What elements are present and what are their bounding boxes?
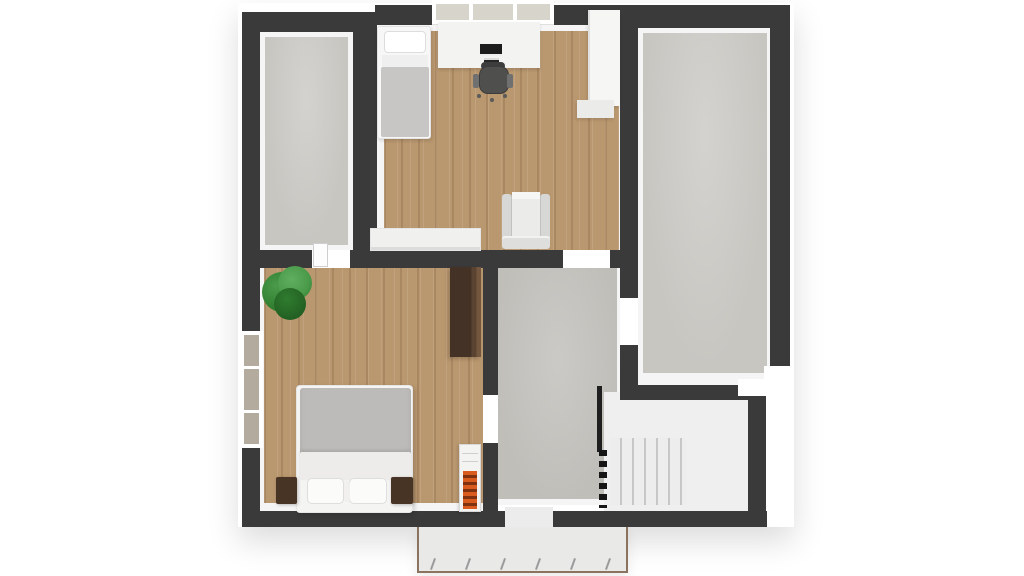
armchair-back [502, 236, 550, 249]
wall-left-lower [242, 446, 260, 519]
baluster-tick [500, 558, 506, 570]
window-corner-right-sill [738, 379, 768, 396]
window-pane [517, 4, 550, 20]
wall-right-upper [770, 5, 790, 368]
floor-plan-canvas [0, 0, 1024, 576]
wall-stairwell-stub [597, 386, 602, 452]
wall-mid-horizontal-b [350, 250, 563, 268]
baluster-tick [570, 558, 576, 570]
door-leaf [313, 243, 328, 267]
baluster-tick [465, 558, 471, 570]
radiator-cap-line [462, 453, 478, 454]
armchair-seat [512, 198, 540, 236]
office-chair [473, 62, 513, 102]
chair-caster [490, 98, 494, 102]
room-attic-storage-right [638, 28, 772, 385]
wall-storage-right-bottom [620, 385, 750, 400]
window-pane [244, 413, 259, 444]
radiator-slats [463, 471, 477, 509]
chair-armrest-right [507, 74, 513, 88]
room-attic-storage-left [260, 32, 353, 250]
wall-bedroom-hall-upper [483, 250, 498, 395]
stair-railing [599, 450, 607, 508]
stair-treads [610, 438, 686, 505]
chair-seat [479, 66, 509, 94]
armchair-arm-right [540, 194, 550, 240]
baluster-tick [430, 558, 436, 570]
wall-hall-storage-upper [620, 5, 638, 298]
dark-wardrobe [450, 267, 481, 357]
wall-bottom-right [553, 511, 767, 527]
radiator-cap-line [462, 461, 478, 462]
bed-pillow [384, 31, 426, 53]
window-bedroom-left [240, 331, 263, 448]
baluster-tick [605, 558, 611, 570]
nightstand-left [276, 477, 297, 504]
plant-foliage [274, 288, 306, 320]
window-pane [244, 335, 259, 366]
armchair [502, 192, 550, 249]
white-wardrobe [588, 10, 620, 106]
wall-top-right [620, 5, 790, 28]
wall-bottom-left [242, 511, 505, 527]
bed-pillow-right [349, 478, 387, 504]
white-wardrobe-foot [577, 100, 614, 118]
chair-caster [503, 94, 507, 98]
single-bed [377, 26, 431, 139]
wall-left-upper [242, 12, 260, 333]
armchair-arm-left [502, 194, 512, 240]
bed-pillow-left [307, 478, 344, 504]
window-pane [436, 4, 469, 20]
window-pane [473, 4, 513, 20]
chair-caster [477, 94, 481, 98]
bed-sheet [382, 55, 428, 67]
plant [262, 266, 316, 320]
chair-armrest-left [473, 74, 479, 88]
monitor [480, 44, 502, 56]
door-bedroom-hall [483, 395, 498, 443]
opening-office-hall [563, 250, 610, 268]
wall-right-stairwell [748, 392, 766, 518]
radiator [459, 444, 481, 512]
bed-pillow-roll [344, 481, 350, 502]
baluster-tick [535, 558, 541, 570]
wall-bedroom-hall-lower [483, 443, 498, 513]
sideboard-shelf [370, 228, 481, 251]
door-hall-storage [620, 298, 638, 345]
bed-duvet-fold [300, 452, 411, 480]
door-balcony [505, 507, 553, 527]
nightstand-right [391, 477, 413, 504]
armchair-front-edge [512, 192, 540, 199]
window-pane [244, 369, 259, 411]
bed-blanket [381, 67, 429, 137]
balcony [417, 525, 628, 573]
